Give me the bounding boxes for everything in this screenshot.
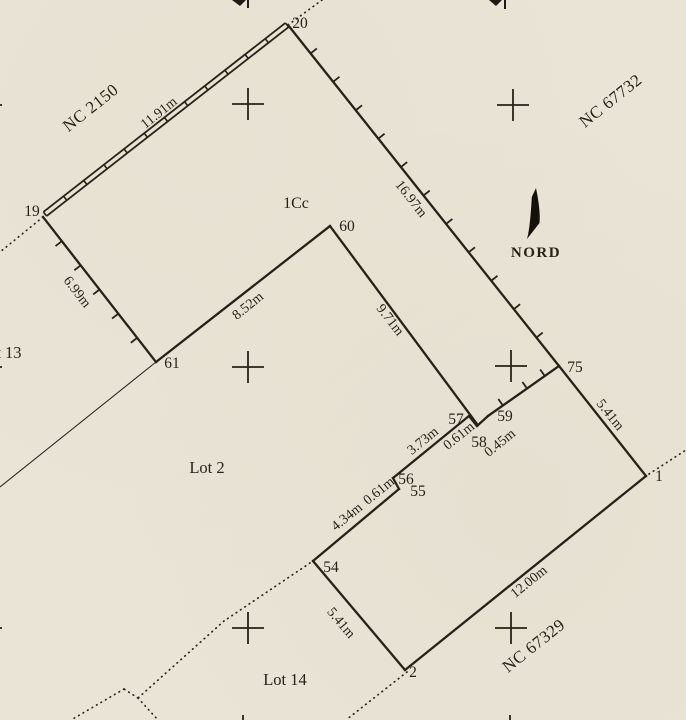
ladder-cap: [43, 212, 46, 216]
dim-20-75: 16.97m: [392, 178, 430, 221]
boundary-tick: [378, 134, 384, 139]
ladder-rung: [84, 180, 87, 184]
boundary-decorations: [43, 23, 544, 406]
boundary-tick: [311, 48, 317, 53]
boundary-tick: [469, 247, 475, 252]
dim-55-56: 0.61m: [361, 474, 398, 508]
boundary-54-55: [313, 489, 399, 561]
dim-58-59: 0.45m: [482, 426, 519, 460]
boundary-tick: [56, 241, 62, 246]
north-label: NORD: [511, 245, 561, 261]
dim-19-20: 11.91m: [138, 94, 180, 132]
boundary-tick: [540, 369, 545, 376]
point-20: 20: [292, 15, 308, 32]
lot2-separation-line: [0, 362, 156, 487]
boundary-tick: [446, 219, 452, 224]
ladder-rung: [144, 133, 147, 137]
lot13-label: Lot 13: [0, 343, 22, 362]
boundary-tick: [522, 382, 527, 389]
boundary-tick: [514, 304, 520, 309]
ladder-rung: [104, 165, 107, 169]
boundary-tick: [401, 162, 407, 167]
ladder-rung: [205, 86, 208, 90]
north-indicator: NORD: [511, 188, 561, 261]
ladder-rung: [64, 196, 67, 200]
dotted-from-2: [346, 672, 407, 720]
ladder-rung: [225, 70, 228, 74]
boundary-tick: [93, 290, 99, 295]
point-60: 60: [339, 218, 355, 235]
point-59: 59: [497, 408, 513, 425]
parcel-1cc-label: 1Cc: [283, 195, 309, 212]
cadastral-plan-sheet: NORD NC 2150 NC 67732 NC 67329 Lot 2 Lot…: [0, 0, 686, 720]
parcel-boundaries: [43, 25, 646, 670]
point-54: 54: [323, 559, 339, 576]
point-57: 57: [448, 411, 464, 428]
boundary-tick: [498, 399, 503, 406]
ladder-rung: [245, 54, 248, 58]
dotted-from-54-b: [138, 621, 224, 698]
dotted-from-19: [0, 217, 43, 252]
dim-54-2: 5.41m: [323, 605, 357, 642]
point-1: 1: [655, 468, 663, 485]
neighbor-parcel-ne: NC 67732: [576, 70, 646, 131]
cadastral-plan-drawing: NORD NC 2150 NC 67732 NC 67329 Lot 2 Lot…: [0, 0, 686, 720]
ladder-rung: [124, 149, 127, 153]
point-2: 2: [409, 664, 417, 681]
point-58: 58: [471, 434, 487, 451]
dotted-jog-a: [138, 698, 158, 720]
boundary-tick: [424, 191, 430, 196]
dim-54-55: 4.34m: [329, 500, 366, 534]
boundary-tick: [356, 105, 362, 110]
sheet-edge-marks: [232, 0, 505, 9]
dotted-jog-c: [71, 689, 124, 720]
boundary-tick: [131, 338, 137, 343]
point-75: 75: [567, 359, 583, 376]
boundary-58-59: [477, 416, 488, 426]
dim-61-60: 8.52m: [230, 289, 267, 323]
survey-point-labels: 20 19 61 60 75 1 2 54 55 56 57 58 59: [24, 15, 663, 681]
boundary-tick: [536, 333, 542, 338]
boundary-61-60: [156, 226, 330, 362]
point-56: 56: [398, 471, 414, 488]
neighbor-parcel-se: NC 67329: [499, 615, 569, 676]
point-61: 61: [164, 355, 180, 372]
boundary-tick: [112, 314, 118, 319]
edge-mark-icon: [489, 0, 502, 6]
ladder-rung: [265, 39, 268, 43]
dotted-jog-b: [124, 689, 138, 698]
boundary-tick: [74, 265, 80, 270]
dotted-from-54-a: [224, 563, 310, 621]
lot2-label: Lot 2: [189, 458, 224, 477]
ladder-rung: [185, 102, 188, 106]
boundary-tick: [491, 276, 497, 281]
north-arrow-icon: [527, 188, 540, 239]
boundary-75-1: [559, 366, 646, 476]
neighbor-parcel-nw: NC 2150: [59, 80, 122, 136]
edge-mark-icon: [232, 0, 246, 6]
lot14-label: Lot 14: [263, 670, 307, 689]
point-19: 19: [24, 203, 40, 220]
boundary-tick: [333, 77, 339, 82]
dim-19-61: 6.99m: [60, 274, 94, 311]
